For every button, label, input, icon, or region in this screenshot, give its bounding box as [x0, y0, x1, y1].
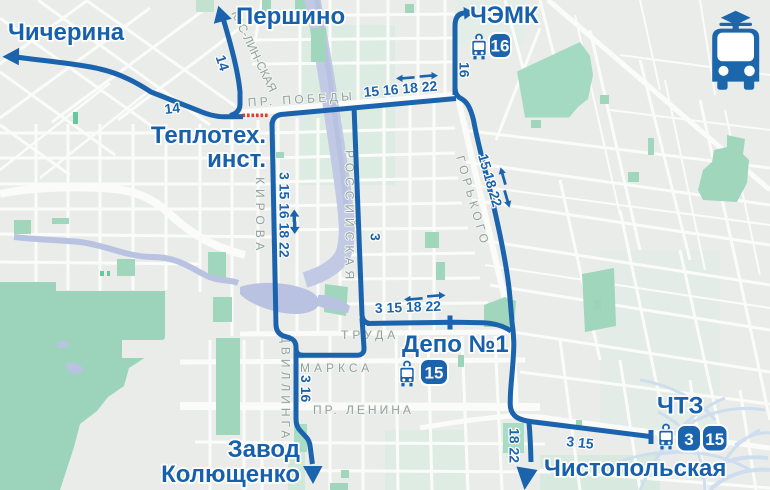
- svg-text:МАРКСА: МАРКСА: [300, 361, 373, 375]
- svg-text:ЦВИЛЛИНГА: ЦВИЛЛИНГА: [279, 334, 293, 442]
- svg-text:Теплотех.: Теплотех.: [151, 122, 266, 149]
- svg-text:3: 3: [368, 233, 384, 241]
- svg-text:3 16: 3 16: [298, 375, 314, 402]
- svg-text:ЧТЗ: ЧТЗ: [657, 393, 704, 420]
- svg-text:Першино: Першино: [236, 3, 345, 30]
- svg-text:Чистопольская: Чистопольская: [544, 455, 726, 482]
- svg-text:КИРОВА: КИРОВА: [253, 177, 267, 255]
- svg-text:ТРУДА: ТРУДА: [341, 328, 399, 342]
- svg-text:3 15 16 18 22: 3 15 16 18 22: [277, 172, 293, 258]
- svg-text:ЧЭМК: ЧЭМК: [470, 2, 539, 29]
- svg-text:18 22: 18 22: [507, 428, 523, 463]
- svg-text:14: 14: [164, 99, 181, 117]
- svg-text:3: 3: [684, 430, 693, 449]
- svg-text:3 15: 3 15: [566, 433, 595, 452]
- svg-text:Завод: Завод: [228, 436, 300, 463]
- svg-text:инст.: инст.: [207, 146, 266, 173]
- svg-text:3 15 18 22: 3 15 18 22: [375, 298, 442, 316]
- svg-text:ПР. ЛЕНИНА: ПР. ЛЕНИНА: [313, 403, 414, 417]
- svg-text:16: 16: [491, 37, 510, 56]
- svg-text:Чичерина: Чичерина: [8, 19, 125, 46]
- svg-text:Депо №1: Депо №1: [402, 331, 509, 358]
- svg-text:16: 16: [457, 62, 473, 78]
- svg-text:15: 15: [705, 430, 724, 449]
- svg-text:Колющенко: Колющенко: [161, 461, 300, 488]
- svg-text:15: 15: [425, 364, 444, 383]
